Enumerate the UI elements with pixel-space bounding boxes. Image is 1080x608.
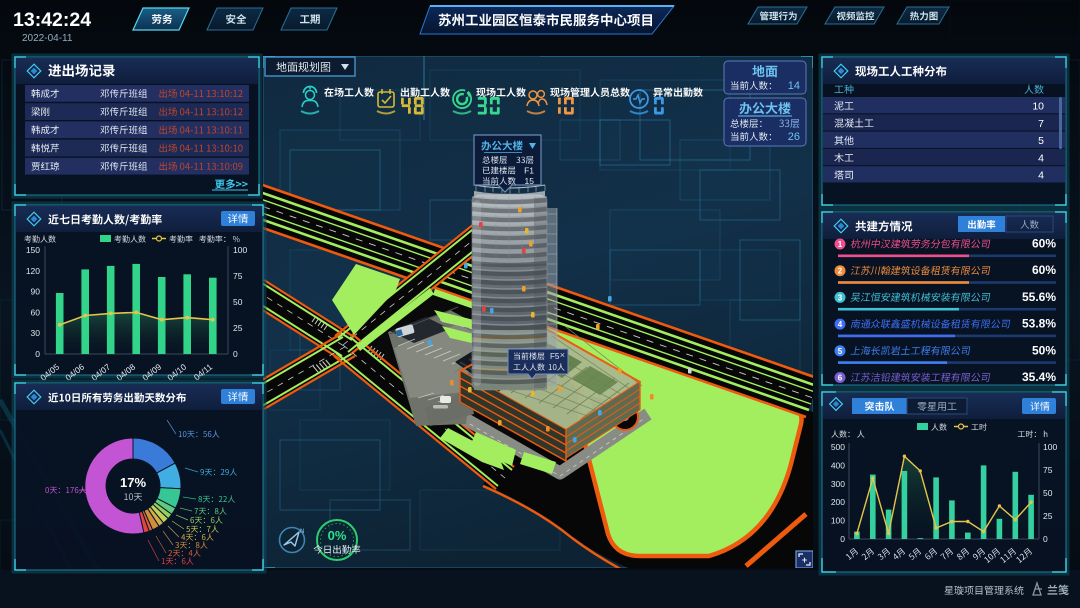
svg-text:50: 50: [1043, 488, 1053, 498]
svg-text:75: 75: [1043, 465, 1053, 475]
svg-text:4: 4: [838, 320, 843, 329]
svg-text:90: 90: [31, 287, 41, 297]
svg-text:50: 50: [233, 297, 243, 307]
svg-text:3: 3: [838, 293, 843, 302]
svg-text:5: 5: [1038, 135, 1044, 147]
svg-text:35.4%: 35.4%: [1022, 370, 1056, 384]
svg-text:53.8%: 53.8%: [1022, 317, 1056, 331]
svg-text:0: 0: [233, 349, 238, 359]
svg-text:+: +: [802, 555, 807, 565]
svg-text:400: 400: [831, 460, 845, 470]
svg-text:0: 0: [840, 534, 845, 544]
svg-text:10: 10: [1032, 101, 1044, 113]
svg-text:1: 1: [838, 240, 843, 249]
svg-text:F1: F1: [524, 166, 534, 176]
svg-text:0: 0: [1043, 534, 1048, 544]
svg-text:6: 6: [838, 374, 843, 383]
svg-text:120: 120: [26, 266, 40, 276]
svg-text:×: ×: [560, 350, 565, 360]
svg-text:13:42:24: 13:42:24: [13, 9, 91, 31]
svg-text:60%: 60%: [1032, 237, 1056, 251]
svg-text:300: 300: [831, 479, 845, 489]
svg-text:14: 14: [788, 80, 800, 92]
svg-text:30: 30: [31, 328, 41, 338]
svg-text:25: 25: [1043, 511, 1053, 521]
svg-text:100: 100: [1043, 442, 1057, 452]
svg-text:150: 150: [26, 245, 40, 255]
svg-text:100: 100: [233, 245, 247, 255]
svg-text:2022-04-11: 2022-04-11: [22, 33, 73, 44]
svg-text:500: 500: [831, 442, 845, 452]
svg-text:0%: 0%: [328, 528, 347, 543]
svg-text:75: 75: [233, 271, 243, 281]
svg-text:4: 4: [1038, 170, 1044, 182]
svg-text:50%: 50%: [1032, 343, 1056, 357]
svg-text:7: 7: [1038, 118, 1044, 130]
svg-text:2: 2: [838, 267, 843, 276]
svg-text:F5: F5: [550, 352, 560, 361]
svg-text:100: 100: [831, 516, 845, 526]
svg-text:200: 200: [831, 497, 845, 507]
svg-text:15: 15: [525, 176, 535, 186]
svg-text:60: 60: [31, 307, 41, 317]
svg-text:26: 26: [788, 131, 800, 143]
svg-text:25: 25: [233, 323, 243, 333]
svg-text:5: 5: [838, 347, 843, 356]
svg-text:55.6%: 55.6%: [1022, 290, 1056, 304]
svg-text:4: 4: [1038, 152, 1044, 164]
svg-text:0: 0: [35, 349, 40, 359]
svg-text:60%: 60%: [1032, 263, 1056, 277]
svg-text:N: N: [300, 529, 304, 535]
svg-text:17%: 17%: [120, 475, 146, 490]
